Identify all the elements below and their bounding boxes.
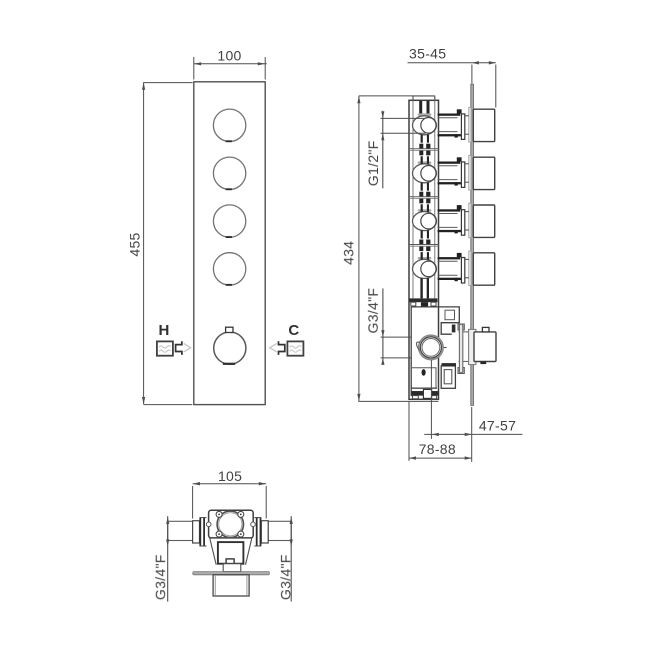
svg-text:105: 105 [218,468,242,484]
svg-text:G3/4"F: G3/4"F [365,288,381,334]
svg-text:G1/2"F: G1/2"F [365,140,381,186]
svg-text:35-45: 35-45 [409,46,446,62]
svg-text:47-57: 47-57 [479,417,516,433]
svg-text:100: 100 [217,48,241,64]
svg-text:G3/4"F: G3/4"F [152,554,168,600]
svg-text:C: C [288,322,299,339]
svg-text:78-88: 78-88 [419,441,456,457]
svg-text:434: 434 [340,241,356,265]
svg-text:H: H [158,322,169,339]
svg-text:455: 455 [127,232,143,256]
